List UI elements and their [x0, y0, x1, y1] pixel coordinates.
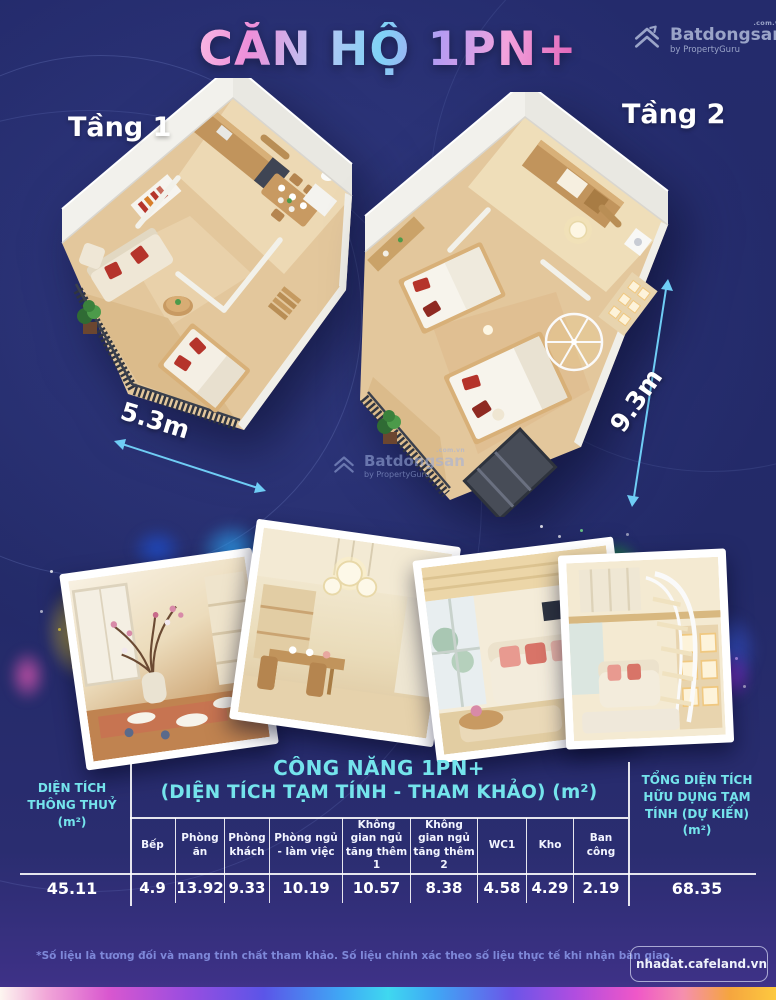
floor1-label: Tầng 1 [68, 112, 171, 143]
column-value: 4.58 [478, 873, 527, 903]
speckle-dots [50, 570, 53, 573]
clear-area-value: 45.11 [14, 879, 130, 898]
cafeland-label: nhadat.cafeland.vn [636, 957, 767, 971]
column-header: WC1 [478, 818, 527, 873]
column-value: 8.38 [411, 873, 478, 903]
column-value: 9.33 [225, 873, 270, 903]
column-header: Không gian ngủ tăng thêm 1 [343, 818, 411, 873]
disclaimer-note: *Số liệu là tương đối và mang tính chất … [30, 950, 680, 962]
column-header: Phòng ăn [176, 818, 225, 873]
column-value: 2.19 [574, 873, 628, 903]
rainbow-gradient-bar [0, 987, 776, 1000]
total-area-header: TỔNG DIỆN TÍCH HỮU DỤNG TẠM TÍNH (DỰ KIẾ… [631, 772, 763, 839]
brand-name: Batdongsan [670, 27, 776, 45]
column-header: Không gian ngủ tăng thêm 2 [411, 818, 478, 873]
column-value: 10.57 [343, 873, 411, 903]
column-value: 4.9 [130, 873, 176, 903]
clear-area-header: DIỆN TÍCH THÔNG THUỶ (m²) [22, 780, 122, 830]
batdongsan-logo[interactable]: .com.vn Batdongsan by PropertyGuru [630, 20, 776, 55]
column-value: 13.92 [176, 873, 225, 903]
column-header: Ban công [574, 818, 628, 873]
room-area-grid: Bếp Phòng ăn Phòng khách Phòng ngủ - làm… [130, 818, 628, 903]
column-value: 10.19 [270, 873, 343, 903]
brand-byline: by PropertyGuru [670, 46, 776, 55]
interior-photo-loft-stairs [558, 548, 734, 749]
speckle-dots [540, 525, 543, 528]
total-area-value: 68.35 [630, 879, 764, 898]
table-group-title: CÔNG NĂNG 1PN+ (DIỆN TÍCH TẠM TÍNH - THA… [130, 756, 628, 803]
column-header: Phòng ngủ - làm việc [270, 818, 343, 873]
batdongsan-watermark: .com.vn Batdongsan by PropertyGuru [330, 448, 465, 479]
column-value: 4.29 [527, 873, 574, 903]
column-header: Kho [527, 818, 574, 873]
floor2-label: Tầng 2 [622, 99, 725, 130]
column-header: Bếp [130, 818, 176, 873]
paint-splash-pink [0, 638, 55, 713]
poster: CĂN HỘ 1PN+ .com.vn Batdongsan by Proper… [0, 0, 776, 1000]
cafeland-link-badge[interactable]: nhadat.cafeland.vn [630, 946, 768, 982]
batdongsan-house-icon [330, 451, 358, 477]
batdongsan-house-icon [630, 21, 664, 53]
width-dimension-arrow [110, 430, 270, 500]
area-table: CÔNG NĂNG 1PN+ (DIỆN TÍCH TẠM TÍNH - THA… [0, 750, 776, 935]
column-header: Phòng khách [225, 818, 270, 873]
